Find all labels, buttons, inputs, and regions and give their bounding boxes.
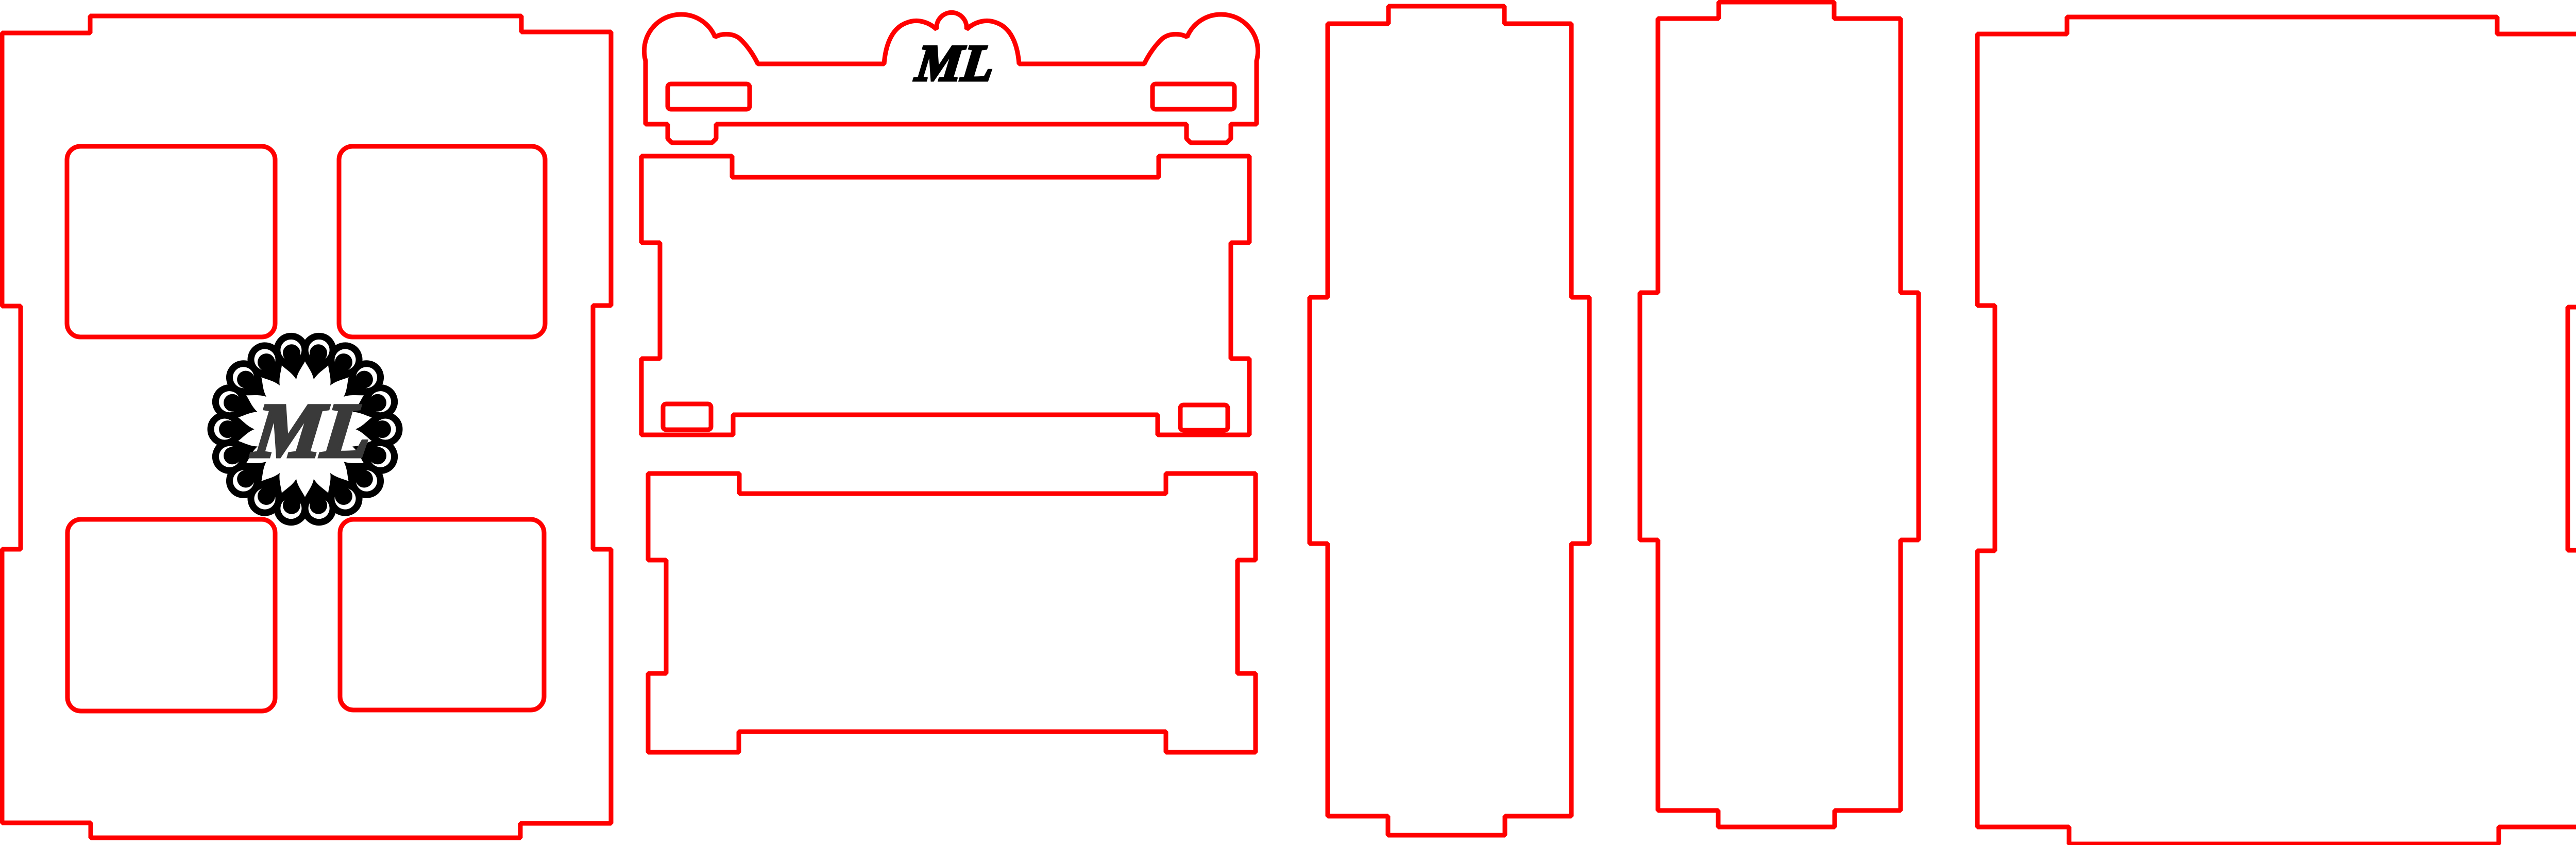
svg-text:ML: ML [248, 388, 376, 474]
svg-text:ML: ML [912, 35, 997, 92]
